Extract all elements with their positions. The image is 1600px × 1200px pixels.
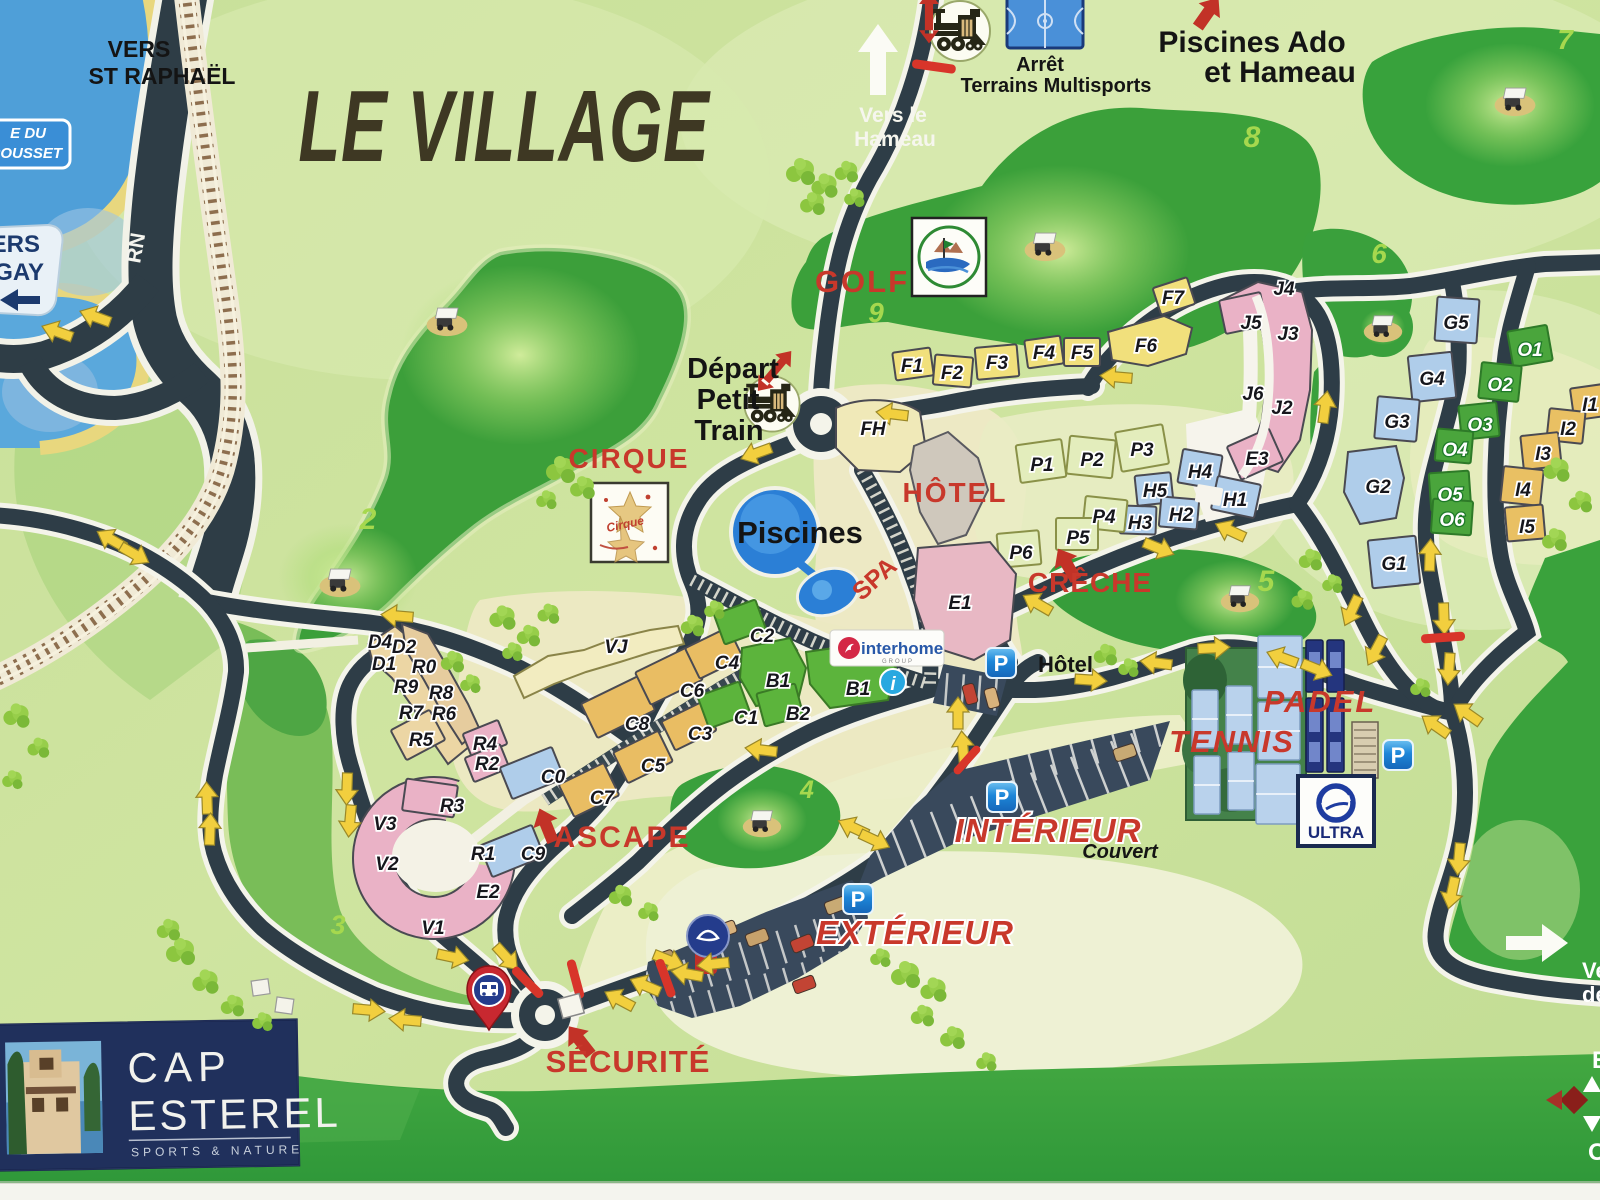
svg-text:B1: B1: [846, 679, 870, 700]
svg-text:P: P: [1391, 743, 1406, 768]
svg-text:6: 6: [1371, 238, 1387, 269]
svg-text:HÔTEL: HÔTEL: [903, 476, 1008, 508]
svg-text:O6: O6: [1439, 510, 1465, 531]
svg-text:V1: V1: [421, 918, 444, 939]
svg-text:J6: J6: [1242, 384, 1264, 405]
svg-text:R3: R3: [440, 796, 465, 817]
svg-text:PADEL: PADEL: [1264, 684, 1377, 719]
svg-text:Départ: Départ: [687, 353, 779, 385]
svg-text:R7: R7: [399, 703, 425, 724]
svg-text:C0: C0: [541, 767, 566, 788]
svg-text:P4: P4: [1092, 507, 1116, 528]
svg-text:J5: J5: [1240, 313, 1262, 334]
svg-text:Piscines Ado: Piscines Ado: [1158, 26, 1345, 59]
svg-text:ASCAPE: ASCAPE: [553, 821, 690, 854]
svg-text:R8: R8: [429, 683, 454, 704]
svg-text:ST RAPHAËL: ST RAPHAËL: [89, 63, 236, 89]
svg-text:Train: Train: [694, 415, 763, 447]
svg-text:B2: B2: [786, 704, 811, 725]
svg-text:R6: R6: [432, 704, 457, 725]
svg-text:G4: G4: [1419, 369, 1445, 390]
svg-text:I2: I2: [1560, 419, 1576, 440]
svg-text:D1: D1: [372, 654, 396, 675]
svg-text:i: i: [890, 674, 896, 695]
svg-text:G1: G1: [1381, 554, 1406, 575]
svg-text:O4: O4: [1442, 440, 1468, 461]
svg-text:interhome: interhome: [861, 639, 943, 658]
svg-text:C7: C7: [590, 788, 616, 809]
svg-text:D4: D4: [368, 632, 393, 653]
svg-text:2: 2: [359, 503, 377, 536]
svg-text:E DU: E DU: [10, 125, 47, 142]
svg-text:4: 4: [799, 776, 814, 804]
svg-text:GAY: GAY: [0, 259, 44, 286]
svg-text:F6: F6: [1135, 336, 1158, 357]
svg-text:C6: C6: [680, 681, 705, 702]
svg-text:J4: J4: [1273, 279, 1295, 300]
svg-text:O1: O1: [1517, 340, 1542, 361]
svg-text:et Hameau: et Hameau: [1204, 56, 1356, 89]
svg-text:CRÊCHE: CRÊCHE: [1028, 567, 1152, 598]
svg-text:R5: R5: [409, 730, 434, 751]
svg-text:GOLF: GOLF: [815, 264, 909, 299]
svg-text:P1: P1: [1030, 455, 1053, 476]
svg-text:J2: J2: [1271, 398, 1293, 419]
svg-text:P: P: [995, 785, 1010, 810]
svg-text:P5: P5: [1066, 528, 1090, 549]
svg-text:O2: O2: [1487, 375, 1513, 396]
svg-text:F4: F4: [1033, 343, 1056, 364]
svg-text:B1: B1: [766, 671, 790, 692]
svg-text:H1: H1: [1223, 490, 1247, 511]
svg-text:GROUP: GROUP: [882, 659, 914, 665]
svg-text:Hôtel: Hôtel: [1038, 652, 1093, 677]
svg-text:O: O: [1588, 1139, 1600, 1166]
svg-text:I3: I3: [1535, 444, 1551, 465]
svg-text:VERS: VERS: [108, 36, 171, 62]
svg-text:EXTÉRIEUR: EXTÉRIEUR: [816, 914, 1014, 951]
svg-text:8: 8: [1244, 121, 1261, 154]
svg-text:dé: dé: [1582, 982, 1600, 1007]
svg-text:ERS: ERS: [0, 231, 40, 258]
svg-text:Terrains Multisports: Terrains Multisports: [961, 75, 1152, 97]
svg-text:V2: V2: [375, 854, 399, 875]
svg-text:H2: H2: [1169, 505, 1194, 526]
svg-text:O5: O5: [1437, 485, 1463, 506]
svg-text:P6: P6: [1009, 543, 1033, 564]
svg-text:RROUSSET: RROUSSET: [0, 145, 64, 162]
svg-text:INTÉRIEUR: INTÉRIEUR: [955, 812, 1142, 849]
svg-text:E: E: [1592, 1047, 1600, 1074]
svg-text:F7: F7: [1162, 288, 1186, 309]
svg-text:Arrêt: Arrêt: [1016, 54, 1064, 76]
svg-text:F3: F3: [986, 353, 1009, 374]
svg-text:R4: R4: [473, 734, 498, 755]
svg-text:3: 3: [330, 910, 345, 940]
svg-text:VJ: VJ: [604, 637, 628, 658]
svg-text:Vers le: Vers le: [859, 104, 927, 127]
svg-text:CAP: CAP: [127, 1043, 232, 1092]
svg-text:SÉCURITÉ: SÉCURITÉ: [546, 1044, 711, 1079]
svg-text:R9: R9: [394, 677, 419, 698]
svg-text:P2: P2: [1080, 450, 1104, 471]
svg-text:E2: E2: [476, 882, 500, 903]
svg-text:G3: G3: [1384, 412, 1410, 433]
svg-text:E3: E3: [1245, 449, 1269, 470]
svg-text:FH: FH: [860, 419, 887, 440]
svg-text:E1: E1: [948, 593, 971, 614]
svg-text:V3: V3: [373, 814, 397, 835]
svg-text:Hameau: Hameau: [854, 128, 936, 151]
svg-text:J3: J3: [1277, 324, 1299, 345]
svg-text:P: P: [994, 651, 1009, 676]
svg-text:I5: I5: [1519, 517, 1535, 538]
svg-text:G2: G2: [1365, 477, 1391, 498]
svg-text:Petit: Petit: [697, 384, 760, 416]
svg-text:I1: I1: [1582, 395, 1598, 416]
svg-text:H4: H4: [1188, 462, 1213, 483]
svg-text:ESTEREL: ESTEREL: [128, 1089, 341, 1140]
svg-text:5: 5: [1258, 565, 1276, 598]
svg-text:Piscines: Piscines: [737, 515, 863, 550]
svg-text:C4: C4: [715, 653, 740, 674]
svg-text:LE VILLAGE: LE VILLAGE: [298, 71, 710, 183]
svg-text:C9: C9: [521, 844, 546, 865]
svg-text:O3: O3: [1467, 415, 1493, 436]
svg-text:C1: C1: [734, 708, 758, 729]
svg-text:TENNIS: TENNIS: [1169, 724, 1295, 759]
svg-text:H3: H3: [1128, 513, 1153, 534]
svg-text:I4: I4: [1515, 480, 1531, 501]
svg-text:G5: G5: [1443, 313, 1469, 334]
svg-text:ULTRA: ULTRA: [1308, 823, 1364, 842]
svg-text:C3: C3: [688, 724, 713, 745]
svg-text:F5: F5: [1071, 343, 1094, 364]
svg-text:R2: R2: [475, 754, 500, 775]
svg-text:F1: F1: [901, 356, 923, 377]
svg-text:CIRQUE: CIRQUE: [569, 443, 690, 474]
svg-text:9: 9: [868, 297, 884, 328]
svg-text:Ve: Ve: [1582, 958, 1600, 983]
svg-text:C2: C2: [750, 626, 775, 647]
svg-text:R1: R1: [471, 844, 495, 865]
svg-text:H5: H5: [1143, 481, 1168, 502]
svg-text:C8: C8: [625, 714, 650, 735]
svg-text:C5: C5: [641, 756, 666, 777]
svg-text:P3: P3: [1130, 440, 1154, 461]
svg-text:F2: F2: [941, 363, 964, 384]
svg-text:R0: R0: [412, 657, 437, 678]
svg-text:7: 7: [1557, 24, 1574, 55]
svg-text:P: P: [851, 887, 866, 912]
